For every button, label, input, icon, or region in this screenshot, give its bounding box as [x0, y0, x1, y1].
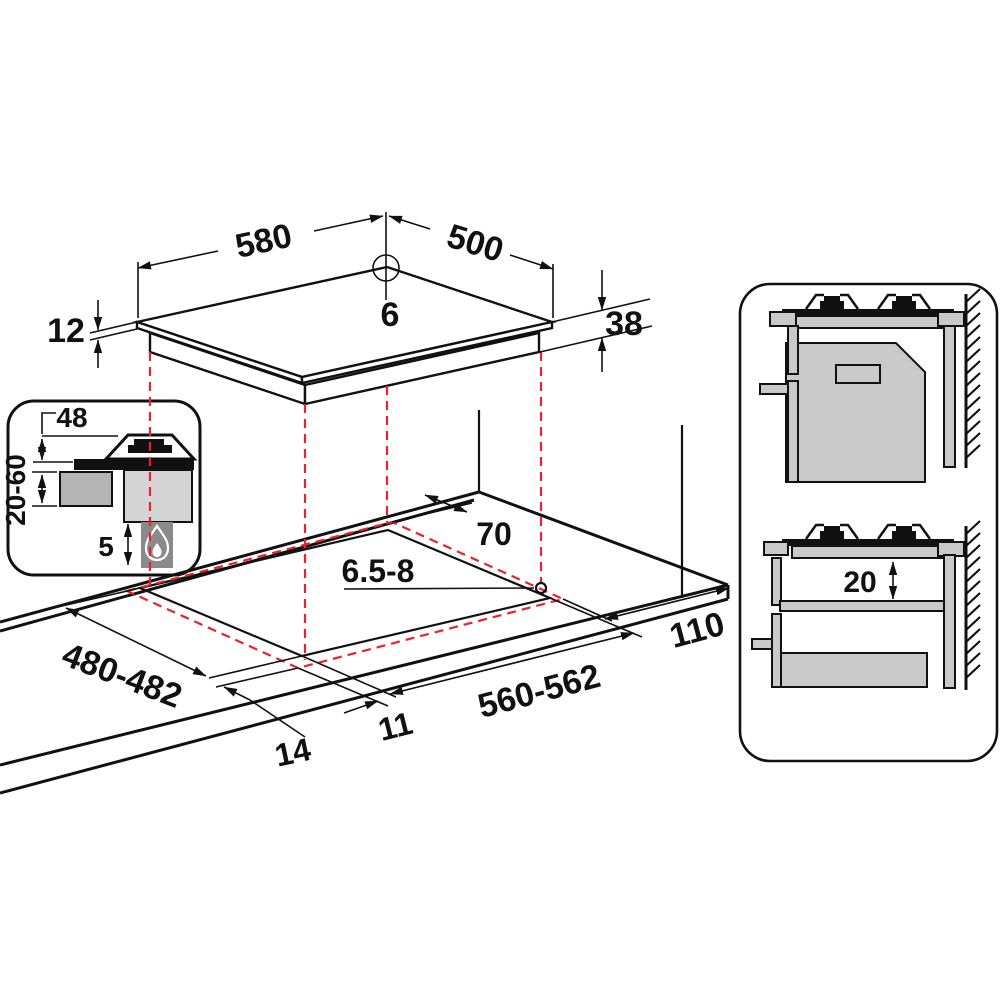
bracket-right: [938, 312, 964, 326]
dim-rear-clearance: 70: [392, 495, 512, 552]
side-view-above-shelf: 20: [752, 521, 980, 690]
hob-flange-section: [74, 459, 194, 470]
dim-glass-thickness: 12: [47, 300, 137, 368]
bracket-right: [938, 542, 964, 556]
cabinet-side-left: [788, 326, 798, 374]
mounting-tab: [760, 384, 788, 394]
installation-diagram: 580 500 6 12 38 48: [0, 0, 1000, 1000]
side-view-above-oven: [760, 289, 980, 482]
cabinet-side-left-lower: [772, 614, 781, 687]
oven-vent: [836, 365, 880, 383]
rear-clearance-label: 70: [476, 516, 512, 552]
hob-depth-label: 500: [443, 217, 508, 270]
hob-body-section: [124, 470, 192, 522]
edge-offset-left-label: 14: [272, 731, 314, 774]
cabinet-side-right: [944, 555, 955, 688]
dim-cutout-depth: 480-482: [57, 588, 302, 716]
worktop-thickness-label: 20-60: [0, 454, 31, 526]
hob-isometric: [137, 255, 552, 404]
shelf: [780, 601, 944, 611]
glass-thickness-label: 12: [47, 312, 85, 350]
worktop-slab-section: [60, 472, 112, 506]
installation-inset: 48 20-60 5: [0, 401, 200, 575]
mounting-tab: [752, 639, 772, 649]
cabinet-side-right: [944, 326, 955, 467]
height-above-label: 48: [56, 402, 87, 433]
dim-total-height: 38: [540, 270, 652, 372]
rear-hole-label: 6: [381, 296, 400, 334]
dim-fixing-hole: 6.5-8: [342, 553, 546, 593]
diagram-canvas: 580 500 6 12 38 48: [0, 0, 1000, 1000]
hob-width-label: 580: [232, 217, 296, 266]
edge-offset-front-label: 11: [375, 705, 417, 748]
side-view-panel: 20: [740, 284, 997, 761]
bracket-left: [764, 542, 788, 555]
hob-profile-bar: [782, 309, 954, 316]
cabinet-side-left: [772, 558, 781, 605]
shelf-clearance-label: 20: [843, 566, 876, 599]
hob-profile-bar: [782, 539, 954, 546]
total-height-label: 38: [605, 305, 643, 343]
fixing-hole-label: 6.5-8: [342, 553, 415, 589]
cabinet-side-left-lower: [788, 381, 798, 482]
clearance-below-label: 5: [98, 531, 114, 562]
cutout-depth-label: 480-482: [57, 636, 187, 716]
cutout-width-label: 560-562: [474, 657, 604, 726]
bracket-left: [770, 312, 796, 326]
drawer: [781, 653, 927, 687]
hob-underside: [792, 546, 944, 558]
oven-body: [786, 343, 925, 482]
dim-edge-offset-left: 14: [216, 668, 314, 774]
hob-underside: [792, 316, 944, 328]
